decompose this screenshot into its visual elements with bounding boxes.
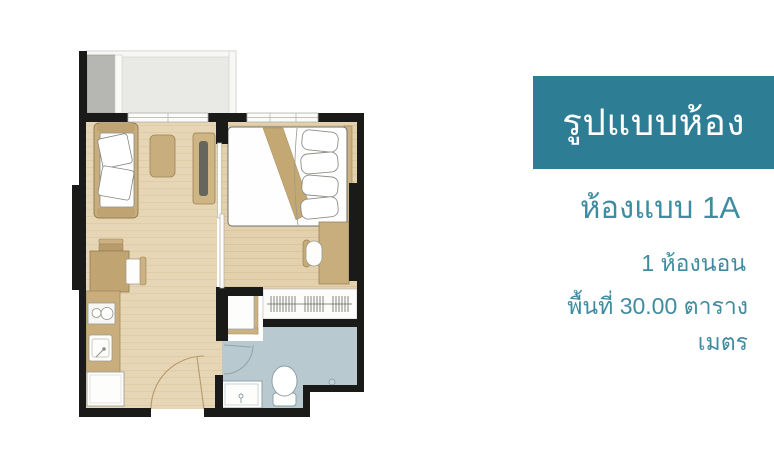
column xyxy=(72,185,86,290)
floor-plan-container xyxy=(0,0,440,457)
dining-chair-2 xyxy=(126,257,146,285)
column xyxy=(349,183,364,281)
burner-icon xyxy=(101,308,113,320)
floor-plan xyxy=(0,0,440,457)
area-label: พื้นที่ 30.00 ตารางเมตร xyxy=(533,289,748,361)
bathroom-vanity xyxy=(221,381,262,408)
dining-chair xyxy=(99,239,123,251)
kitchen-sink xyxy=(89,335,112,361)
banner-title: รูปแบบห้อง xyxy=(562,93,745,152)
stove xyxy=(88,303,115,324)
bedroom-window xyxy=(247,113,318,122)
coffee-table xyxy=(150,135,175,177)
room-type-banner: รูปแบบห้อง xyxy=(533,76,774,169)
refrigerator xyxy=(87,372,124,406)
toilet xyxy=(272,366,297,406)
sofa xyxy=(94,123,138,218)
tv-icon xyxy=(199,141,208,196)
bedroom-count-label: 1 ห้องนอน xyxy=(533,246,746,282)
balcony-sliding-door xyxy=(128,113,208,122)
floor-drain-icon xyxy=(329,379,335,385)
balcony xyxy=(86,51,236,117)
dining-table xyxy=(90,251,129,292)
desk xyxy=(319,222,349,284)
wardrobe xyxy=(263,289,357,319)
burner-icon xyxy=(92,309,101,318)
info-panel: รูปแบบห้อง ห้องแบบ 1A 1 ห้องนอน พื้นที่ … xyxy=(533,76,774,361)
double-bed xyxy=(228,126,352,227)
room-type-label: ห้องแบบ 1A xyxy=(533,182,740,232)
tv-console xyxy=(193,133,215,204)
air-con-pad xyxy=(87,55,115,113)
desk-chair xyxy=(303,240,322,267)
